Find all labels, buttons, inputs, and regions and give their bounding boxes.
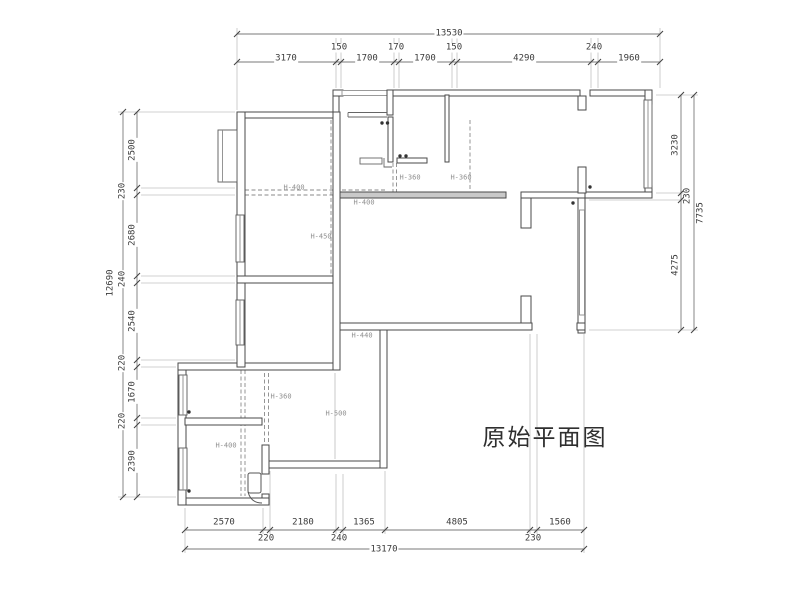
dimension-label: 3170 [274, 55, 298, 64]
dimension-label: 230 [524, 535, 542, 544]
floorplan-canvas: 原始平面图 1353031701501700170170015042902401… [0, 0, 800, 596]
dimension-label: 220 [119, 354, 128, 372]
beam-height-label: H-440 [350, 332, 373, 341]
beam-height-label: H-400 [352, 199, 375, 208]
cased-opening [348, 113, 387, 118]
dimension-label: 1700 [355, 55, 379, 64]
dimension-label: 240 [119, 270, 128, 288]
dimension-label: 1560 [548, 519, 572, 528]
dimension-label: 4290 [512, 55, 536, 64]
floorplan-drawing [0, 0, 800, 596]
beam-height-label: H-360 [398, 174, 421, 183]
dimension-label: 1960 [617, 55, 641, 64]
extension-lines [118, 28, 698, 553]
beam-height-label: H-360 [269, 393, 292, 402]
dimension-label: 13170 [369, 546, 398, 555]
beam-height-label: H-400 [214, 442, 237, 451]
dimension-label: 1670 [129, 380, 138, 404]
dimension-label: 170 [387, 44, 405, 53]
dimension-label: 2540 [129, 309, 138, 333]
dimension-label: 230 [119, 182, 128, 200]
beam-height-label: H-500 [324, 410, 347, 419]
beam-height-label: H-360 [449, 174, 472, 183]
dimension-label: 1700 [413, 55, 437, 64]
dimension-label: 150 [330, 44, 348, 53]
dimension-label: 2570 [212, 519, 236, 528]
dimension-label: 2500 [129, 138, 138, 162]
dimension-label: 150 [445, 44, 463, 53]
dimension-label: 220 [119, 412, 128, 430]
dimension-label: 240 [330, 535, 348, 544]
dimension-label: 4805 [445, 519, 469, 528]
beam-height-label: H-450 [309, 233, 332, 242]
dimension-label: 240 [585, 44, 603, 53]
dimension-label: 2180 [291, 519, 315, 528]
beam-height-label: H-400 [282, 184, 305, 193]
dimension-label: 4275 [672, 253, 681, 277]
dimension-label: 230 [684, 187, 693, 205]
dimension-label: 2680 [129, 223, 138, 247]
dimension-label: 1365 [352, 519, 376, 528]
dimension-label: 220 [257, 535, 275, 544]
dimension-label: 2390 [129, 449, 138, 473]
dimension-label: 7735 [697, 201, 706, 225]
dimension-label: 12690 [107, 268, 116, 297]
dimension-lines [123, 34, 694, 549]
dimension-label: 13530 [434, 30, 463, 39]
beam-dashed-lines [241, 120, 470, 496]
dimension-ticks [120, 31, 697, 552]
dimension-label: 3230 [672, 133, 681, 157]
plan-title: 原始平面图 [483, 418, 608, 452]
bath-counter [360, 158, 392, 167]
